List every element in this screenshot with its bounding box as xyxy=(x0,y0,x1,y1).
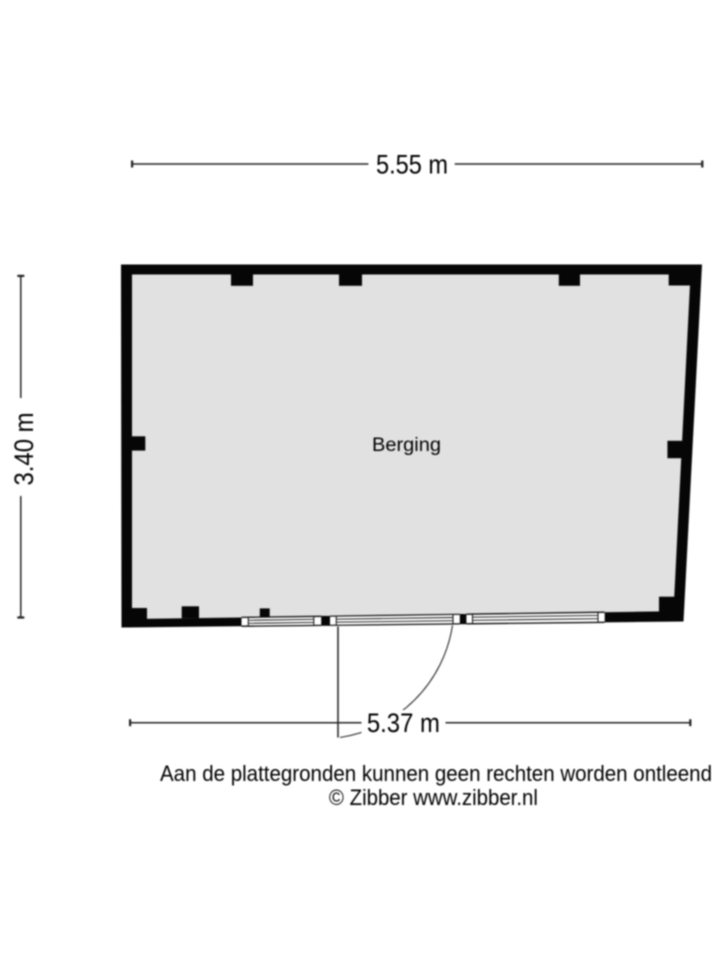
svg-text:© Zibber www.zibber.nl: © Zibber www.zibber.nl xyxy=(329,785,538,810)
svg-text:5.55 m: 5.55 m xyxy=(376,149,448,179)
svg-text:Aan de plattegronden kunnen ge: Aan de plattegronden kunnen geen rechten… xyxy=(160,761,712,786)
svg-text:5.37 m: 5.37 m xyxy=(367,708,440,738)
svg-text:3.40 m: 3.40 m xyxy=(9,413,39,486)
svg-text:Berging: Berging xyxy=(372,434,441,456)
